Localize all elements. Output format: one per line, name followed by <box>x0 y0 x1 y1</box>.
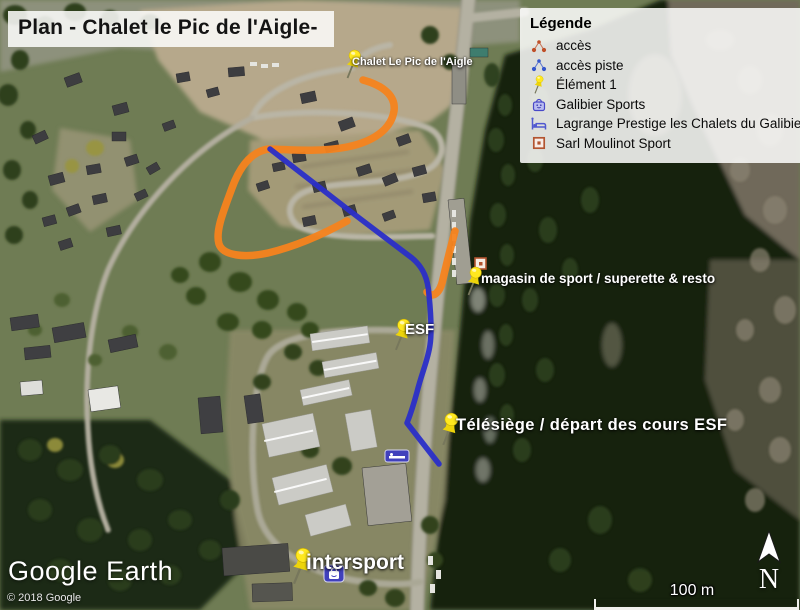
legend-item-label: Sarl Moulinot Sport <box>556 136 671 151</box>
pin-label-chalet: Chalet Le Pic de l'Aigle <box>352 56 473 68</box>
square-marker-icon <box>530 135 547 152</box>
legend-item-moulinot: Sarl Moulinot Sport <box>530 136 800 151</box>
legend-item-acces: accès <box>530 38 800 53</box>
legend-item-label: Lagrange Prestige les Chalets du Galibie… <box>556 116 800 131</box>
pin-label-telesiege: Télésiège / départ des cours ESF <box>456 416 727 435</box>
pushpin-icon <box>530 76 547 93</box>
legend-item-acces-piste: accès piste <box>530 58 800 73</box>
route-dots-blue-icon <box>530 57 547 74</box>
bed-sign-icon <box>385 450 409 462</box>
route-dots-red-icon <box>530 37 547 54</box>
scale-bar-line <box>594 599 799 610</box>
compass-n-label: N <box>750 569 788 591</box>
bed-icon <box>530 115 547 132</box>
legend-item-element1: Élément 1 <box>530 77 800 92</box>
pin-label-magasin: magasin de sport / superette & resto <box>481 271 715 286</box>
legend-panel: Légende accès accès piste <box>520 8 800 163</box>
legend-heading: Légende <box>530 15 800 32</box>
pin-label-intersport: intersport <box>306 551 404 575</box>
page-title: Plan - Chalet le Pic de l'Aigle- <box>8 11 334 47</box>
scale-label: 100 m <box>632 582 752 600</box>
google-earth-logo: Google Earth <box>8 556 173 587</box>
legend-item-galibier-sports: Galibier Sports <box>530 97 800 112</box>
legend-item-label: Galibier Sports <box>556 97 645 112</box>
north-arrow-icon <box>750 530 788 564</box>
pin-label-esf: ESF <box>405 321 434 338</box>
google-earth-map-view[interactable]: Chalet Le Pic de l'Aigle magasin de spor… <box>0 0 800 610</box>
legend-item-label: accès piste <box>556 58 624 73</box>
shopping-bag-icon <box>530 96 547 113</box>
copyright-text: © 2018 Google <box>7 592 81 604</box>
compass: N <box>750 530 788 591</box>
legend-item-label: Élément 1 <box>556 77 617 92</box>
legend-item-label: accès <box>556 38 591 53</box>
legend-item-lagrange: Lagrange Prestige les Chalets du Galibie… <box>530 116 800 131</box>
